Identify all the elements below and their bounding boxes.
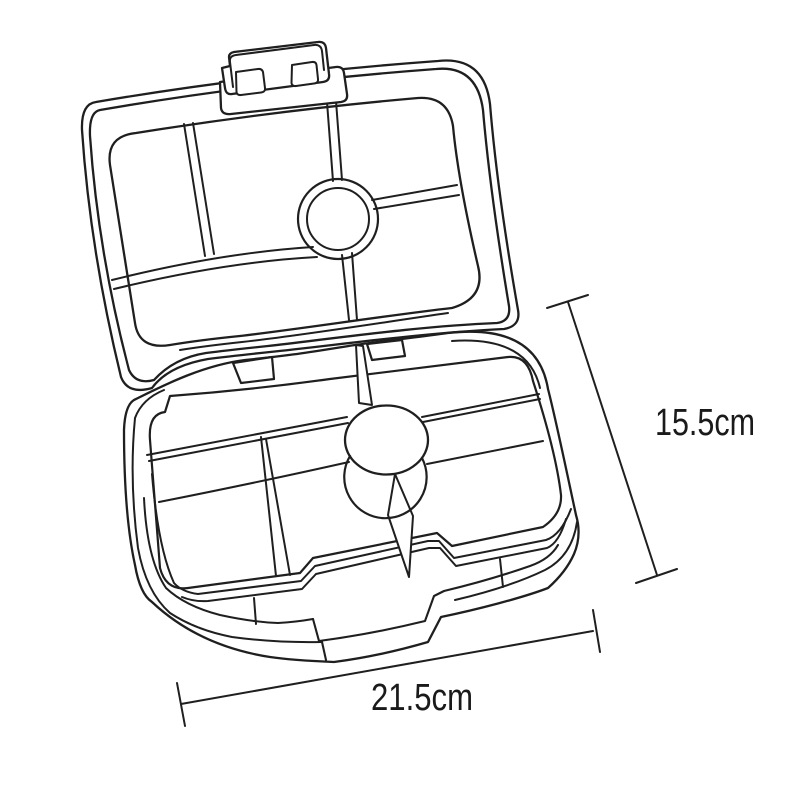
svg-text:15.5cm: 15.5cm [655, 402, 755, 444]
svg-text:21.5cm: 21.5cm [371, 677, 473, 719]
